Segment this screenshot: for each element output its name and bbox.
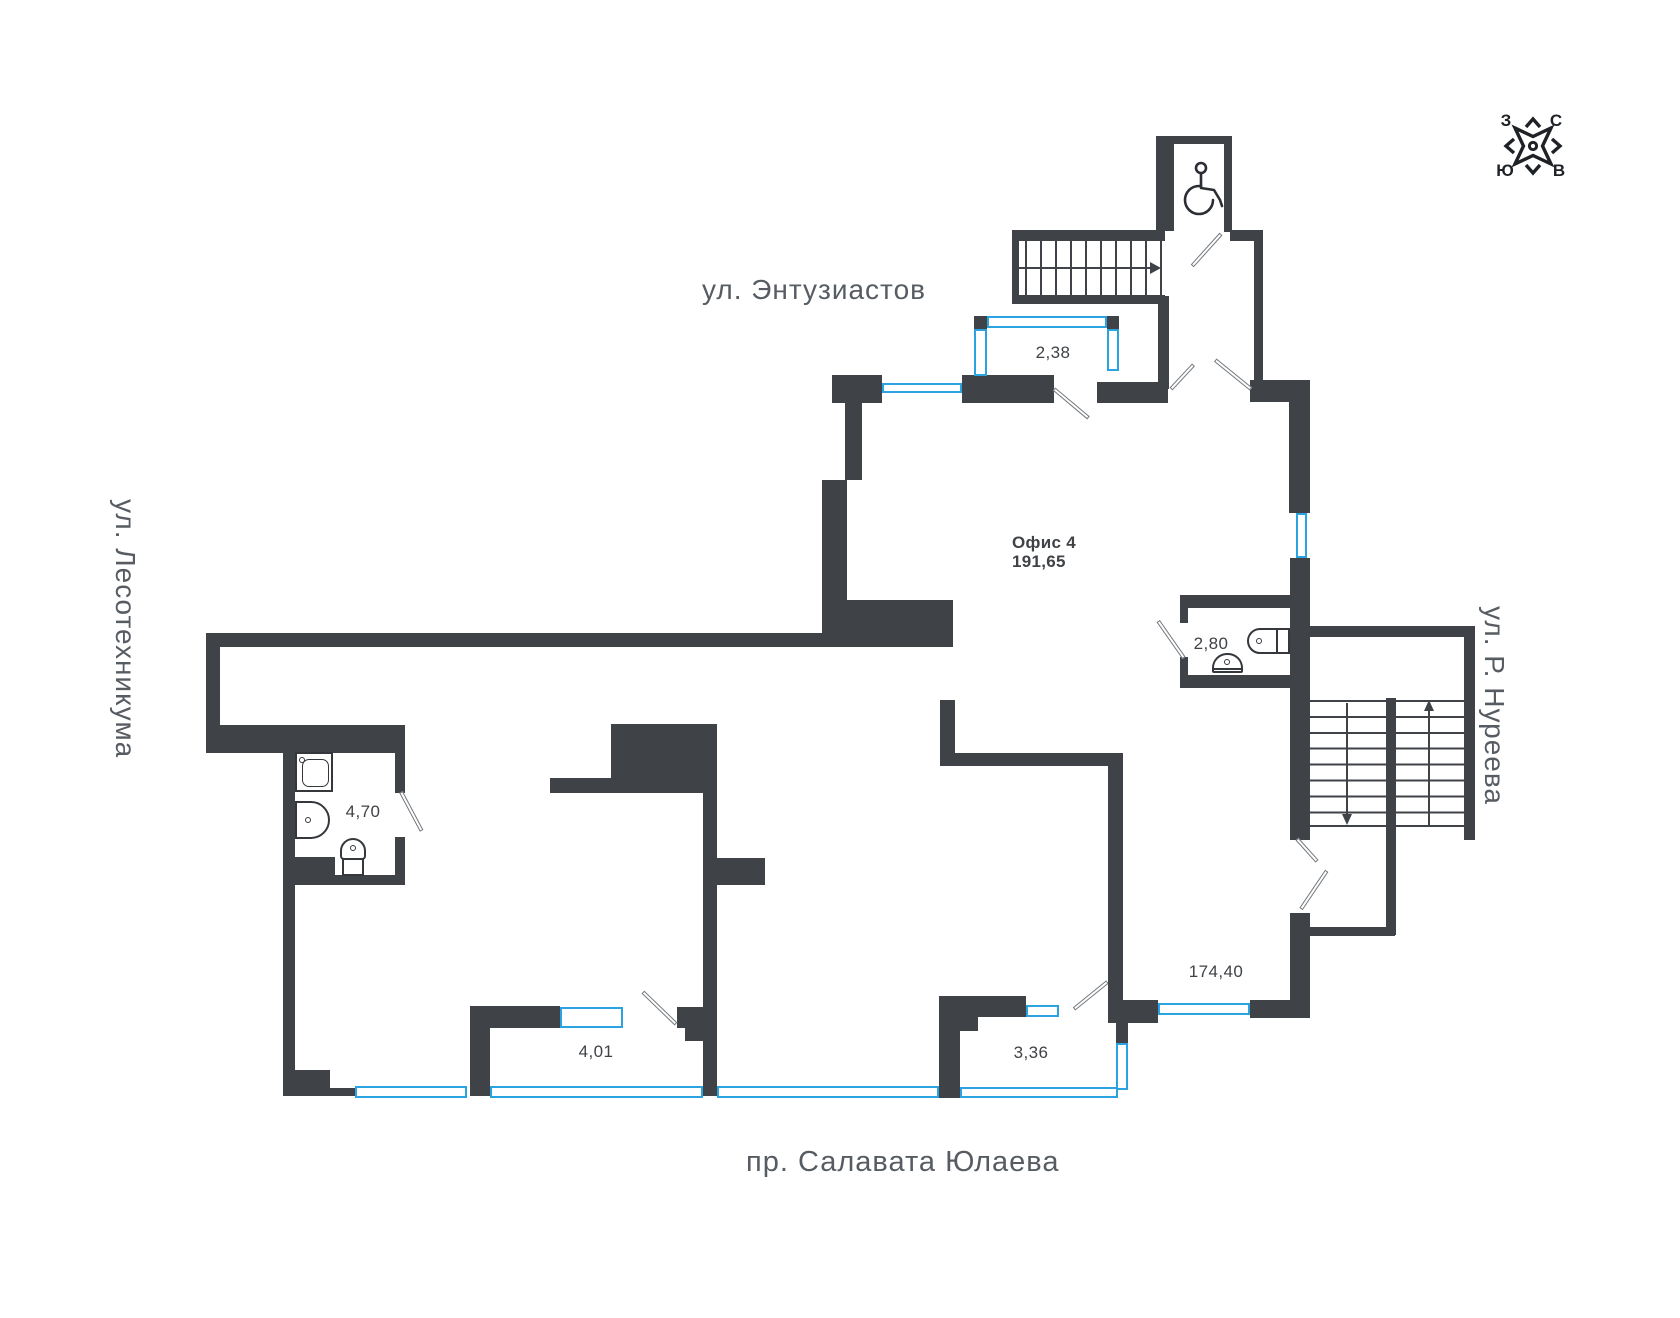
wall — [939, 996, 960, 1098]
window — [1158, 1003, 1250, 1015]
window — [974, 329, 987, 376]
toilet-seat-line — [1214, 668, 1241, 670]
stair-walk-line — [1428, 708, 1430, 825]
wall — [283, 753, 295, 1096]
street-label-bottom: пр. Салавата Юлаева — [746, 1146, 1060, 1179]
toilet-drain-icon — [350, 845, 356, 851]
compass-north-label: С — [1550, 111, 1562, 130]
balcony-area-label: 2,38 — [1036, 343, 1071, 363]
compass-west-label: З — [1501, 111, 1512, 130]
staircase-right-flight-up — [1396, 700, 1464, 827]
wall — [1290, 558, 1310, 840]
office-area: 191,65 — [1012, 552, 1076, 571]
sink-drain-icon — [305, 817, 311, 823]
wall — [470, 1006, 560, 1028]
wall — [822, 600, 953, 647]
window — [490, 1086, 703, 1098]
compass-south-label: Ю — [1496, 161, 1514, 180]
wall — [283, 1070, 330, 1096]
stair-arrow-down-icon — [1342, 814, 1352, 825]
sink-drain-icon — [1256, 638, 1262, 644]
door-leaf — [1053, 387, 1090, 419]
wall — [685, 1028, 703, 1041]
wall — [1290, 913, 1310, 1018]
wall — [962, 375, 1054, 403]
street-label-right: ул. Р. Нуреева — [1478, 606, 1510, 805]
window — [1026, 1005, 1059, 1017]
window — [987, 316, 1107, 328]
wall — [1108, 1000, 1158, 1023]
stair-middle-wall — [1386, 698, 1396, 935]
wall — [550, 778, 611, 793]
door-leaf — [1157, 620, 1186, 659]
door-leaf — [1299, 870, 1328, 910]
stair-walk-line — [1346, 703, 1348, 821]
street-label-left: ул. Лесотехникума — [109, 499, 141, 758]
sink-icon — [1247, 628, 1290, 654]
door-leaf — [642, 991, 678, 1026]
compass-east-label: В — [1553, 161, 1565, 180]
compass-chevron-left — [1506, 139, 1514, 153]
door-leaf — [1073, 980, 1109, 1010]
wall — [395, 753, 405, 793]
toilet-tank — [342, 858, 364, 876]
room-right-area-label: 3,36 — [1014, 1043, 1049, 1063]
window — [1116, 1043, 1128, 1090]
door-leaf — [1170, 364, 1195, 391]
wall — [940, 753, 1123, 766]
office-label: Офис 4 191,65 — [1012, 533, 1076, 571]
stair-arrow-up-icon — [1424, 700, 1434, 711]
street-label-top: ул. Энтузиастов — [702, 274, 926, 306]
window — [560, 1007, 623, 1028]
wall — [1308, 626, 1475, 637]
room-left-area-label: 4,01 — [579, 1042, 614, 1062]
compass-chevron-right — [1552, 139, 1560, 153]
compass-chevron-down — [1526, 165, 1540, 173]
wall — [1310, 927, 1395, 936]
wall — [1180, 595, 1290, 608]
wall — [677, 1007, 703, 1028]
wall — [1254, 230, 1263, 392]
office-name: Офис 4 — [1012, 533, 1076, 552]
wc-left-area-label: 4,70 — [346, 802, 381, 822]
wall — [1180, 608, 1188, 623]
balcony-pillar — [1107, 316, 1119, 329]
wall — [832, 375, 882, 403]
compass-chevron-up — [1526, 119, 1540, 127]
door-leaf — [1214, 358, 1252, 390]
stair-bottom-line — [1310, 825, 1464, 827]
wall — [206, 633, 822, 647]
stair-direction-arrow-icon — [1150, 262, 1161, 274]
wall — [1250, 380, 1310, 402]
balcony-pillar — [974, 316, 987, 329]
wall — [335, 875, 405, 885]
wall — [1289, 402, 1310, 513]
wall — [1012, 230, 1165, 241]
shower-tray-inner — [302, 759, 329, 787]
floor-plan: ул. Энтузиастов ул. Лесотехникума ул. Р.… — [0, 0, 1680, 1318]
wall — [1158, 296, 1169, 389]
wall — [717, 858, 765, 885]
door-leaf — [1191, 233, 1223, 268]
window — [355, 1086, 467, 1098]
toilet-drain-icon — [1224, 659, 1230, 665]
door-leaf — [399, 791, 423, 832]
window — [1296, 513, 1307, 558]
door-leaf — [1296, 838, 1319, 863]
wall — [1012, 295, 1165, 304]
wall — [206, 725, 405, 753]
wall — [295, 857, 335, 885]
wheelchair-accessible-icon — [1174, 160, 1226, 222]
wall — [1464, 637, 1475, 840]
sink-divider — [1276, 630, 1278, 652]
stair-walk-line — [1014, 267, 1152, 269]
wall — [1156, 143, 1174, 231]
wall — [1116, 1023, 1128, 1043]
window — [960, 1087, 1118, 1098]
window — [1107, 329, 1119, 371]
staircase-right-flight-down — [1310, 700, 1386, 827]
main-area-label: 174,40 — [1189, 962, 1243, 982]
wall — [703, 793, 717, 1096]
wall — [845, 403, 862, 480]
compass-rose-icon: З С Ю В — [1488, 98, 1580, 192]
drain-icon — [299, 757, 305, 763]
wall — [940, 700, 955, 753]
sink-icon — [295, 801, 330, 839]
wall — [330, 1088, 355, 1096]
wc-top-area-label: 2,80 — [1194, 634, 1229, 654]
window — [717, 1086, 939, 1098]
wall — [1180, 675, 1290, 688]
wall — [1097, 382, 1168, 403]
compass-center — [1529, 142, 1536, 149]
wall — [1108, 753, 1123, 1023]
window — [882, 383, 962, 393]
wall — [611, 724, 717, 793]
